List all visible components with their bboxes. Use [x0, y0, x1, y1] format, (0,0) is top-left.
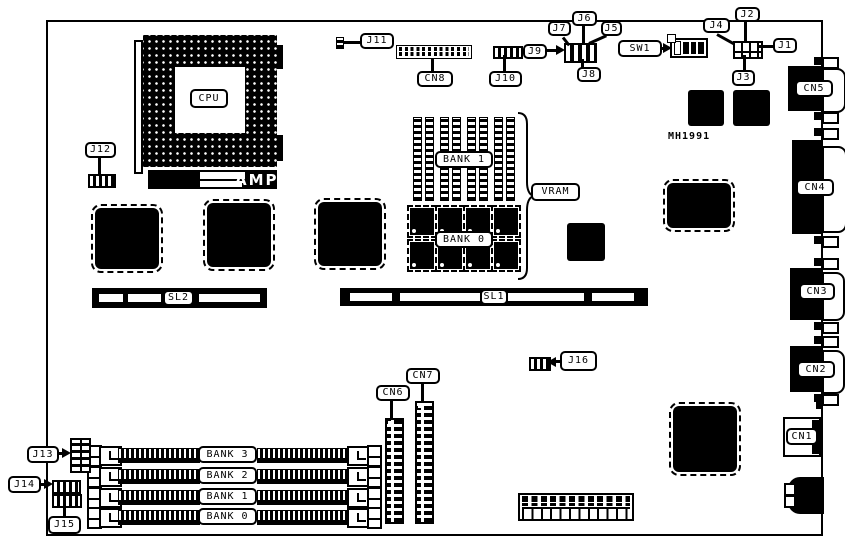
- leader-cn6: [390, 401, 393, 419]
- label-vram-bank0: BANK 0: [435, 231, 493, 248]
- mount-tab: [822, 336, 839, 348]
- label-sl1: SL1: [480, 289, 508, 305]
- cpu-socket-tab: [277, 135, 283, 161]
- mount-tab: [814, 112, 821, 120]
- label-j14: J14: [8, 476, 41, 493]
- simm-bar: [118, 448, 200, 463]
- mount-tab: [814, 128, 821, 136]
- leader-j14-arrow: [44, 479, 53, 489]
- header-cn6: [385, 418, 404, 524]
- qfp-chip: [673, 406, 737, 472]
- label-vram-bank1: BANK 1: [435, 151, 493, 168]
- simm-endcap: [367, 507, 382, 529]
- label-j13: J13: [27, 446, 59, 463]
- mount-tab: [814, 336, 821, 344]
- simm-endcap: [367, 466, 382, 488]
- sl2-opening: [128, 294, 161, 302]
- qfp-chip: [207, 203, 271, 267]
- mount-tab: [814, 322, 821, 330]
- label-simm-bank0: BANK 0: [198, 508, 257, 525]
- din-pin: [784, 495, 796, 508]
- sw1-switch-4: [698, 42, 704, 54]
- mount-tab: [822, 128, 839, 140]
- mount-tab: [822, 112, 839, 124]
- label-j8: J8: [577, 67, 601, 82]
- simm-bar: [118, 469, 200, 484]
- connector-j11: [336, 37, 344, 49]
- vram-socket: [413, 117, 422, 201]
- label-cn6: CN6: [376, 385, 410, 401]
- sl1-opening: [508, 293, 584, 301]
- label-cn8: CN8: [417, 71, 453, 87]
- header-cn7: [415, 401, 434, 524]
- label-j6: J6: [572, 11, 597, 26]
- simm-bar: [257, 448, 349, 463]
- power-pin-row: [522, 496, 630, 502]
- leader-j1: [759, 45, 773, 48]
- power-dash-row: [522, 503, 630, 506]
- label-j15: J15: [48, 516, 81, 534]
- sl1-opening: [592, 293, 634, 301]
- cpu-label-text: CPU: [198, 94, 219, 104]
- sl1-opening: [400, 293, 480, 301]
- label-j3: J3: [732, 70, 755, 86]
- leader-sw1-arrow: [663, 43, 672, 53]
- label-cn2: CN2: [797, 361, 835, 378]
- cpu-bracket: [134, 40, 143, 174]
- leader-j2: [744, 22, 747, 41]
- sw1-switch-3: [691, 42, 697, 54]
- label-simm-bank2: BANK 2: [198, 467, 257, 484]
- qfp-chip: [667, 183, 731, 228]
- sl1-opening: [350, 293, 392, 301]
- label-j11: J11: [360, 33, 394, 49]
- label-cn1: CN1: [786, 428, 818, 445]
- label-j10: J10: [489, 71, 522, 87]
- amp-label: AMP: [235, 171, 279, 189]
- qfp-chip: [318, 202, 382, 266]
- label-mh1991: MH1991: [668, 131, 710, 142]
- connector-j10: [493, 46, 523, 59]
- chip-small: [567, 223, 605, 261]
- vram-socket: [494, 117, 503, 201]
- cn8-pin-row: [399, 47, 469, 51]
- label-j12: J12: [85, 142, 116, 158]
- mount-tab: [822, 57, 839, 69]
- label-j5: J5: [601, 21, 622, 36]
- cpu-socket-tab: [277, 45, 283, 69]
- mount-tab: [822, 322, 839, 334]
- simm-bar: [257, 490, 349, 505]
- leader-j9-arrow: [556, 45, 565, 55]
- sw1-marker: [667, 34, 676, 43]
- pin-block-j1-j4: [733, 41, 763, 59]
- label-simm-bank3: BANK 3: [198, 446, 257, 463]
- cpu-label: CPU: [190, 89, 228, 108]
- chip-mh1991: [733, 90, 770, 126]
- label-cn5: CN5: [795, 80, 833, 97]
- label-j2: J2: [735, 7, 760, 22]
- label-j9: J9: [523, 44, 547, 59]
- vram-chip: [410, 208, 434, 235]
- jumper-j15: [52, 494, 82, 508]
- motherboard-diagram: CPU AMP J12 J11 CN8 J10 J9 J7 J6 J5 J8 S…: [0, 0, 845, 543]
- power-connector: [518, 493, 634, 521]
- label-j16: J16: [560, 351, 597, 371]
- leader-j13-arrow: [62, 448, 71, 458]
- qfp-chip: [95, 208, 159, 269]
- leader-j12: [98, 158, 101, 175]
- mount-tab: [814, 236, 821, 244]
- edge-notch: [816, 400, 823, 409]
- mount-tab: [814, 258, 821, 266]
- mount-tab: [822, 394, 839, 406]
- label-j4: J4: [703, 18, 730, 33]
- simm-bar: [257, 510, 349, 525]
- label-j7: J7: [548, 21, 571, 36]
- label-cn3: CN3: [799, 283, 835, 300]
- label-cn7: CN7: [406, 368, 440, 384]
- label-sl2: SL2: [163, 290, 194, 306]
- simm-bar: [257, 469, 349, 484]
- jumper-j12: [88, 174, 116, 188]
- sl2-opening: [99, 294, 123, 302]
- jumper-j14: [52, 480, 81, 494]
- mount-tab: [814, 57, 821, 65]
- pin-header-j13: [70, 438, 91, 473]
- label-simm-bank1: BANK 1: [198, 488, 257, 505]
- chip-mh1991: [688, 90, 724, 126]
- label-sw1: SW1: [618, 40, 662, 57]
- simm-bar: [118, 510, 200, 525]
- simm-endcap: [367, 487, 382, 509]
- label-vram: VRAM: [531, 183, 580, 201]
- label-cn4: CN4: [796, 179, 834, 196]
- vram-chip: [410, 242, 434, 269]
- mount-tab: [822, 258, 839, 270]
- label-j1: J1: [773, 38, 797, 53]
- simm-endcap: [367, 445, 382, 467]
- connector-cn8: [396, 45, 472, 59]
- vram-socket: [425, 117, 434, 201]
- leader-j6: [582, 26, 585, 43]
- sl2-opening: [199, 294, 260, 302]
- sw1-switch-2: [683, 42, 689, 54]
- mount-tab: [822, 236, 839, 248]
- leader-j10: [503, 55, 506, 71]
- cn8-pin-row: [399, 52, 469, 56]
- power-socket-row: [522, 507, 630, 519]
- sw1-switch-1: [674, 41, 681, 55]
- leader-cn7: [421, 384, 424, 401]
- leader-j3: [743, 55, 746, 70]
- leader-j11: [344, 41, 360, 44]
- simm-bar: [118, 490, 200, 505]
